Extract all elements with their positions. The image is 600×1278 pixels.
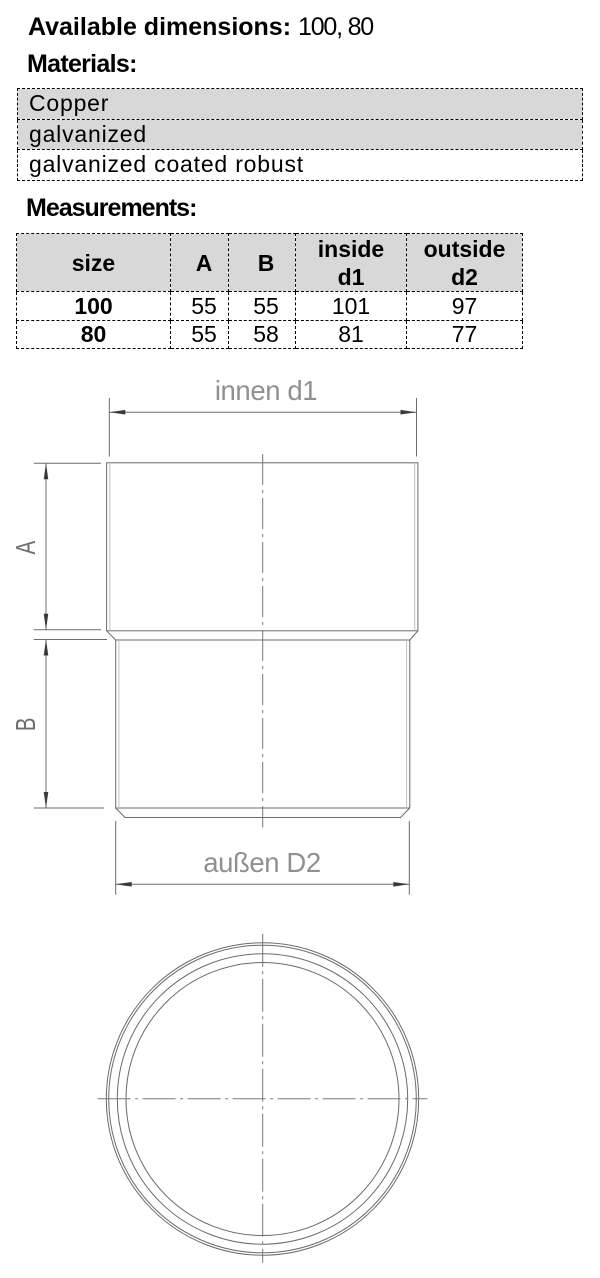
svg-text:innen d1: innen d1 bbox=[215, 375, 317, 406]
svg-text:außen D2: außen D2 bbox=[203, 847, 321, 878]
svg-text:A: A bbox=[11, 540, 42, 554]
svg-text:B: B bbox=[11, 718, 42, 732]
